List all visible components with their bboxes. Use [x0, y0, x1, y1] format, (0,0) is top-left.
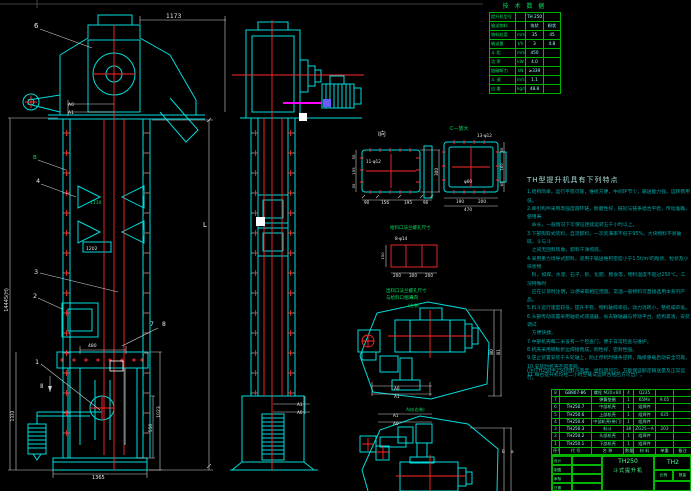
bom-header-cell: 单重	[656, 447, 674, 454]
screw-lines	[262, 418, 284, 454]
table-row: 2TH250.2头部机壳1组焊件	[552, 433, 691, 440]
head-cap	[98, 15, 132, 25]
detail-i-b1: 156	[381, 200, 389, 205]
tv1-dim-a0: A0	[394, 386, 400, 391]
dim-1130: 1130	[90, 200, 102, 206]
mid-dim-a1: A1	[297, 402, 303, 407]
note-line: 命长，一般情况下可保证连续运转五千小时以上。	[527, 222, 690, 230]
coupling	[315, 70, 321, 82]
bom-cell: 组焊件	[634, 433, 656, 440]
bom-cell: 1	[624, 433, 634, 440]
mid-bucket-2-inner	[263, 233, 283, 251]
balloon-7: 7	[150, 321, 154, 328]
bom-cell: 中部机壳(带门)	[592, 418, 624, 425]
tv1-link1	[380, 356, 398, 372]
bom-cell: 上部机壳	[592, 411, 624, 418]
tv2-cap2	[466, 472, 472, 484]
tech-cell	[544, 67, 561, 76]
tech-cell: 自 重	[490, 85, 516, 94]
tech-cell: 3	[526, 40, 544, 49]
dimension-lines	[8, 16, 512, 491]
table-row: 7弹簧垫圈165Mn9.05	[552, 397, 691, 404]
bom-table: 8GB907-86螺栓 M20×804Q235 7弹簧垫圈165Mn9.05 6…	[551, 389, 691, 455]
motor-terminal-box	[330, 76, 344, 84]
note-line: 1.结构简单，运行平稳可靠，维修方便，中间环节少，输送能力强，运转费用低。	[527, 189, 690, 206]
tv1-cap2	[472, 328, 478, 344]
tech-cell: 输送物料	[490, 22, 516, 31]
bom-cell: 6	[552, 404, 560, 411]
title-block-label-date: 日期	[552, 483, 572, 491]
bom-cell: 组焊件	[634, 411, 656, 418]
a-view-sub-1: (左装)	[408, 302, 420, 309]
left-centerline	[93, 25, 135, 470]
bom-cell	[674, 404, 691, 411]
shaft-flange-2	[308, 66, 315, 86]
bom-header-row: 序号代 号名 称数量材 料单重备注	[552, 447, 691, 454]
detail-i-ticks	[362, 195, 433, 198]
tech-cell: 输送量	[490, 40, 516, 49]
note-line: 之间无回料现象，卸料干净彻底。	[527, 247, 690, 255]
tech-cell: TH 250	[526, 13, 544, 22]
bom-header-cell: 数量	[624, 447, 634, 454]
tv1-dim-a1: A1	[394, 394, 400, 399]
inspection-door-inner	[68, 309, 92, 331]
bom-cell: 组焊件	[634, 404, 656, 411]
bom-cell: 38	[624, 426, 634, 433]
dim-L: L	[203, 221, 207, 229]
weight-tip	[33, 454, 41, 460]
tech-cell: 4.0	[526, 58, 544, 67]
detail-i-l0: 55	[351, 154, 356, 159]
bom-cell: 组焊件	[634, 440, 656, 447]
detail-c-dims	[444, 142, 504, 206]
bom-cell	[674, 390, 691, 397]
flange-pattern-mid2	[288, 126, 295, 396]
motor-endcap	[354, 88, 361, 104]
bom-cell: 1	[624, 404, 634, 411]
title-block-scale: 比例	[654, 470, 673, 481]
tech-table-title: 技 术 数 据	[489, 3, 560, 11]
bom-cell: TH250.3	[560, 426, 592, 433]
dim-1173-line	[140, 16, 226, 112]
tv2-cap1	[458, 468, 466, 486]
section2-arrowhead	[48, 386, 52, 392]
detail-i-l1: 155	[351, 167, 356, 175]
tech-cell: kg/m	[516, 85, 526, 94]
balloon-4: 4	[36, 177, 40, 185]
drawing-title: 斗式提升机	[603, 467, 653, 475]
head-outline	[60, 25, 196, 115]
dim-550: 550	[148, 424, 154, 433]
bom-cell	[674, 411, 691, 418]
bom-header-cell: 序号	[552, 447, 560, 454]
white-box-boot	[110, 361, 123, 371]
bom-cell	[674, 433, 691, 440]
mid-bucket-1-inner	[263, 200, 283, 218]
tv1-bottom-dims	[372, 382, 432, 396]
detail-c-r2: 65	[499, 181, 504, 186]
white-marker-casing	[256, 217, 265, 226]
tech-cell: kW	[516, 58, 526, 67]
flange-pattern-left2	[143, 126, 150, 448]
detail-i-l2: 55	[351, 183, 356, 188]
bom-cell: 1	[624, 418, 634, 425]
dim-H: 14445(H)	[4, 288, 10, 312]
mid-head-inner	[252, 36, 294, 112]
tech-cell	[544, 13, 561, 22]
bom-cell	[656, 404, 674, 411]
topview1-outline	[360, 302, 489, 399]
tech-cell: 48.8	[526, 85, 544, 94]
tv1-dim-b1: B1	[496, 349, 501, 355]
bom-cell: 635	[656, 411, 674, 418]
bom-cell: 螺栓 M20×80	[592, 390, 624, 397]
feed-flange-dividers	[406, 245, 422, 267]
tv1-motor-base	[362, 352, 376, 360]
note-line: 4.采用重力诱导式卸料，适用于输送堆积密度小于1.5t/m³的粉状、粒状及小块状…	[527, 256, 690, 273]
a-view-label-2: A向(右装)	[406, 406, 425, 413]
detail-c-r0: 65	[499, 147, 504, 152]
tv1-dim-b0: B0	[489, 349, 494, 355]
note-line: 方便快捷。	[527, 330, 690, 338]
bom-cell	[656, 440, 674, 447]
dim-1333: 1333	[10, 410, 15, 421]
a-view-label-1: A向	[410, 294, 418, 301]
notes-title: TH型提升机具有下列特点	[527, 176, 690, 184]
tv2-dim-a: a	[511, 449, 514, 454]
tv2-motor	[376, 446, 389, 460]
cad-canvas: 1173 6 A0 A1 B 4 1130 1202 3 2 7 8 Ⅱ 1 4…	[0, 0, 691, 491]
tv1-top-box	[420, 308, 442, 320]
table-row: 8GB907-86螺栓 M20×804Q235	[552, 390, 691, 397]
tech-cell: t/h	[516, 40, 526, 49]
white-marker-mid	[299, 113, 307, 121]
bom-cell: 料斗	[592, 426, 624, 433]
bom-cell	[674, 440, 691, 447]
title-block-label-draw: 制图	[552, 465, 572, 474]
bom-cell	[656, 418, 674, 425]
tech-cell: 物料粒度	[490, 31, 516, 40]
tech-cell	[544, 85, 561, 94]
bom-cell: 头部机壳	[592, 433, 624, 440]
flange-pattern-left1	[63, 126, 70, 448]
tech-cell: mm	[516, 49, 526, 58]
note-line: 5.料斗运行速度较低，提升平稳，物料破碎率低，动力消耗小，整机噪声低。	[527, 305, 690, 313]
feed-b1: 300	[409, 273, 417, 278]
notes-footnote: (注)TH250中250为料斗宽度，给料须均匀，方能保证额定输送量及正常运行。	[527, 368, 690, 382]
bom-cell: GB907-86	[560, 390, 592, 397]
tech-cell: 斗 速	[490, 76, 516, 85]
bom-header-cell: 代 号	[560, 447, 592, 454]
balloon-6: 6	[34, 22, 39, 30]
bom-cell	[656, 390, 674, 397]
bom-cell: 8	[552, 390, 560, 397]
feed-note-1: 出料口法兰螺孔尺寸	[386, 287, 427, 294]
tv2-dim-a0: A0	[393, 421, 399, 426]
tech-cell: 块状	[526, 22, 544, 31]
tech-cell	[544, 58, 561, 67]
title-block-label-design: 设计	[552, 456, 572, 465]
bom-cell: 5	[552, 411, 560, 418]
dim-1365: 1365	[92, 475, 105, 481]
feed-b0: 200	[393, 273, 401, 278]
mid-boot	[242, 396, 304, 462]
detail-i-title: Ⅰ向	[378, 130, 386, 138]
feed-left-dim: 150	[380, 252, 385, 260]
title-block-qty: 数量	[673, 470, 691, 481]
balloon-1: 1	[35, 358, 39, 366]
feature-notes: TH型提升机具有下列特点 1.结构简单，运行平稳可靠，维修方便，中间环节少，输送…	[527, 176, 690, 380]
tech-cell: 35	[526, 31, 544, 40]
tech-cell: 粉状	[544, 22, 561, 31]
shaft-flange-1	[300, 60, 308, 92]
bom-cell	[656, 433, 674, 440]
title-block: 设计 制图 审核 日期 TH250 斗式提升机 TH2 比例 数量	[551, 455, 691, 491]
feed-detail-title: 给料口法兰螺孔尺寸	[390, 224, 431, 231]
detail-c-title: C—放大	[450, 125, 469, 132]
tech-cell: 提升机型号	[490, 13, 516, 22]
bom-cell	[674, 397, 691, 404]
title-block-blank	[572, 474, 602, 483]
detail-i-b0: 90	[364, 200, 370, 205]
bom-cell: 中部机壳	[592, 404, 624, 411]
flange-pattern-mid1	[251, 126, 258, 396]
detail-c-r1: 160	[499, 163, 504, 171]
title-block-blank	[654, 481, 691, 491]
bom-cell: 弹簧垫圈	[592, 397, 624, 404]
balloon-3: 3	[34, 268, 38, 276]
bom-cell: 9.05	[656, 397, 674, 404]
bom-cell: ZG25—A	[634, 426, 656, 433]
tv1-link2	[400, 358, 412, 380]
note-line: 8.机壳采用钢板折边焊接而成，刚性好，密封性强。	[527, 347, 690, 355]
title-block-center: TH250 斗式提升机	[602, 456, 654, 491]
boot-inner-lines	[80, 368, 125, 445]
tech-cell	[516, 22, 526, 31]
note-line: 料，如煤、水泥、石子、砂、化肥、粮食等，物料温度不超过250℃。工况特殊时	[527, 272, 690, 289]
bom-cell: 1	[552, 440, 560, 447]
tech-cell: m/s	[516, 76, 526, 85]
detail-c-b1: 200	[478, 199, 486, 204]
tech-cell	[516, 13, 526, 22]
table-row: 1TH250.1下部机壳1组焊件	[552, 440, 691, 447]
table-row: 6TH250.7中部机壳1组焊件	[552, 404, 691, 411]
bom-cell: 2	[552, 433, 560, 440]
tech-cell: 450	[526, 49, 544, 58]
boot-band-bolts	[60, 358, 144, 362]
bom-cell: TH250.1	[560, 440, 592, 447]
section-2-marker: Ⅱ	[40, 382, 43, 390]
cyan-geometry	[23, 15, 506, 491]
bom-cell: 7	[552, 397, 560, 404]
tech-cell: 功 率	[490, 58, 516, 67]
tech-cell: 4.8	[544, 40, 561, 49]
bom-cell: 1	[624, 397, 634, 404]
tech-cell: 斗 距	[490, 49, 516, 58]
detail-i-right-dim: 300	[434, 168, 439, 176]
bom-header-cell: 材 料	[634, 447, 656, 454]
tech-cell: 1.1	[526, 76, 544, 85]
balloon-2: 2	[33, 292, 37, 300]
detail-i-holes: 11-φ12	[366, 159, 381, 164]
detail-c-holes: 13-φ12	[477, 133, 492, 138]
tv1-cross	[388, 310, 472, 358]
bom-cell: TH250.2	[560, 433, 592, 440]
bom-cell: Q235	[634, 390, 656, 397]
title-block-model-right: TH2	[654, 456, 691, 470]
tv2-right-dims	[470, 428, 512, 491]
mid-boot-feet	[230, 462, 318, 470]
bom-cell	[674, 418, 691, 425]
bom-cell: TH250.6	[560, 411, 592, 418]
balloon-B: B	[33, 155, 37, 161]
bom-cell: 组焊件	[634, 418, 656, 425]
detail-c-total: 470	[464, 207, 472, 212]
tech-cell: mm	[516, 31, 526, 40]
dim-1023: 1023	[156, 406, 162, 418]
dim-480-line	[80, 346, 126, 354]
detail-c-b0: 190	[456, 199, 464, 204]
tech-cell: 链破断力	[490, 67, 516, 76]
bom-cell: TH250.7	[560, 404, 592, 411]
mid-head-cap	[258, 22, 288, 30]
bom-cell: TH250.4	[560, 418, 592, 425]
detail-i-b3: 90	[423, 200, 429, 205]
detail-i-bar	[424, 146, 432, 198]
detail-c-center: φ60	[464, 179, 472, 184]
mid-takeup-screw	[262, 414, 284, 460]
bom-cell: 4	[624, 390, 634, 397]
feed-dims	[386, 245, 437, 273]
tech-cell: 45	[544, 31, 561, 40]
tv2-dim-a1: A1	[393, 413, 399, 418]
dim-a1: A1	[68, 110, 74, 116]
boot-body	[68, 368, 137, 458]
tv2-cross	[396, 455, 466, 491]
balloon-8: 8	[162, 321, 166, 328]
bom-cell: 4	[552, 418, 560, 425]
bom-cell: 1	[624, 411, 634, 418]
note-line: 7.中部机壳每二米设有一个检查门，便于日常检查与维护。	[527, 339, 690, 347]
tv2-dim-b: B	[502, 449, 505, 454]
mid-head	[246, 30, 300, 118]
violet-square	[323, 99, 331, 107]
bom-cell	[560, 397, 592, 404]
tech-cell	[544, 76, 561, 85]
dim-a0: A0	[68, 102, 74, 108]
feed-holes: 8-φ14	[395, 236, 408, 241]
buckets	[78, 186, 144, 243]
weight-stack-lines	[28, 428, 46, 448]
tech-cell	[544, 49, 561, 58]
tv2-box2	[416, 424, 432, 443]
title-block-label-check: 审核	[552, 474, 572, 483]
tv2-cylinder	[400, 462, 458, 491]
detail-i-b2: 195	[404, 200, 412, 205]
note-line: 应在订货时注明，以便采取相应措施，常温一般物料可直接选用本系列产品。	[527, 289, 690, 306]
tv2-column	[417, 443, 427, 457]
bom-cell: 203	[656, 426, 674, 433]
feed-b2: 200	[425, 273, 433, 278]
note-line: 9.逆止装置安装于头轮轴上，防止停机时链条逆转，确保重载启动安全可靠。	[527, 355, 690, 363]
table-row: 4TH250.4中部机壳(带门)1组焊件	[552, 418, 691, 425]
title-block-blank	[572, 465, 602, 474]
tech-cell: kN	[516, 67, 526, 76]
title-block-blank	[572, 483, 602, 491]
bom-header-cell: 备注	[674, 447, 691, 454]
note-line: 2.牵引构件采用高强度圆环链，耐磨性好，链轮与链条啮合平稳，传动准确，使用寿	[527, 206, 690, 223]
bom-cell: 3	[552, 426, 560, 433]
dim-a0a1-lines	[68, 100, 114, 116]
drawing-model: TH250	[603, 457, 653, 467]
title-block-blank	[572, 456, 602, 465]
tech-cell: ≥339	[526, 67, 544, 76]
bom-cell: 1	[624, 440, 634, 447]
bom-cell: 下部机壳	[592, 440, 624, 447]
mid-dim-a0: A0	[297, 410, 303, 415]
boot-base	[53, 458, 147, 470]
bom-header-cell: 名 称	[592, 447, 624, 454]
note-line: 3.下部掏取式装料，自流卸料，一次装满率不低于95%，大块物料不易破碎，斗与斗	[527, 231, 690, 248]
note-line: 6.头部传动装置采用轴装式减速器，省去联轴器与传动平台，结构紧凑，安装调试	[527, 314, 690, 331]
sheet-frame-line	[0, 0, 483, 8]
table-row: 3TH250.3料斗38ZG25—A203	[552, 426, 691, 433]
mid-chain-strands	[264, 118, 282, 396]
bom-cell: 65Mn	[634, 397, 656, 404]
bom-cell	[674, 426, 691, 433]
tech-data-table: 提升机型号TH 250 输送物料块状粉状 物料粒度mm3545 输送量t/h34…	[489, 12, 561, 94]
dim-480: 480	[88, 343, 97, 349]
dim-1173: 1173	[166, 13, 181, 20]
feed-flange-rect	[391, 245, 437, 267]
table-row: 5TH250.6上部机壳1组焊件635	[552, 411, 691, 418]
dim-1202: 1202	[86, 246, 98, 252]
